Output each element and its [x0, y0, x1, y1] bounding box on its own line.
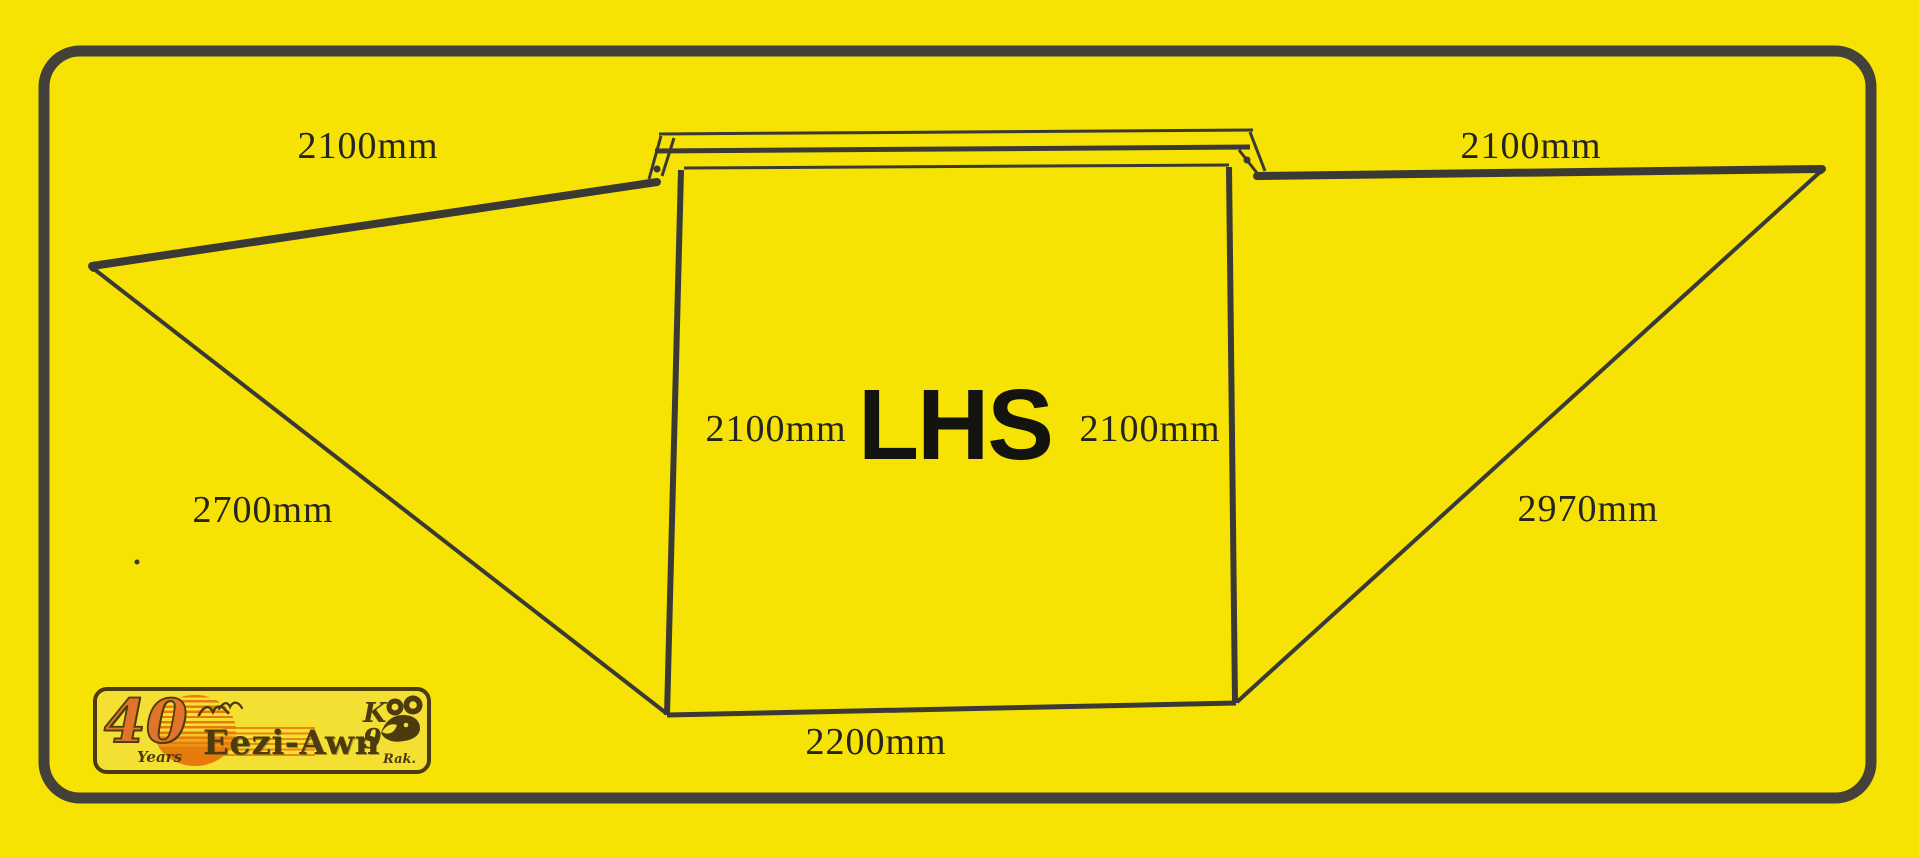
panel-side-label: LHS: [858, 368, 1052, 483]
logo-rak-text: Rak.: [383, 752, 416, 767]
dimension-right-wing-slant: 2970mm: [1517, 487, 1658, 531]
left-wing-outline: [89, 182, 666, 713]
dimension-left-wing-top: 2100mm: [297, 124, 438, 168]
right-wing-outline: [1237, 166, 1825, 703]
logo-years-text: Years: [137, 748, 182, 766]
dimension-panel-left: 2100mm: [705, 407, 846, 451]
dimension-left-wing-slant: 2700mm: [192, 488, 333, 532]
logo-40-text: 40: [104, 691, 188, 754]
eezi-awn-logo: 40 Years Eezi-Awn K9 Rak.: [93, 687, 431, 774]
k9-rak-logo: K9 Rak.: [361, 695, 423, 767]
dimension-panel-right: 2100mm: [1079, 407, 1220, 451]
birds-icon: [195, 699, 253, 723]
awning-dimension-diagram: 2100mm 2100mm 2700mm 2970mm 2200mm 2100m…: [0, 0, 1919, 858]
logo-brand-text: Eezi-Awn: [203, 723, 380, 763]
dimension-right-wing-top: 2100mm: [1460, 124, 1601, 168]
scan-speck: [135, 560, 140, 565]
dimension-panel-bottom: 2200mm: [805, 720, 946, 764]
awning-rail: [649, 130, 1265, 179]
dog-head-icon: [377, 697, 423, 753]
